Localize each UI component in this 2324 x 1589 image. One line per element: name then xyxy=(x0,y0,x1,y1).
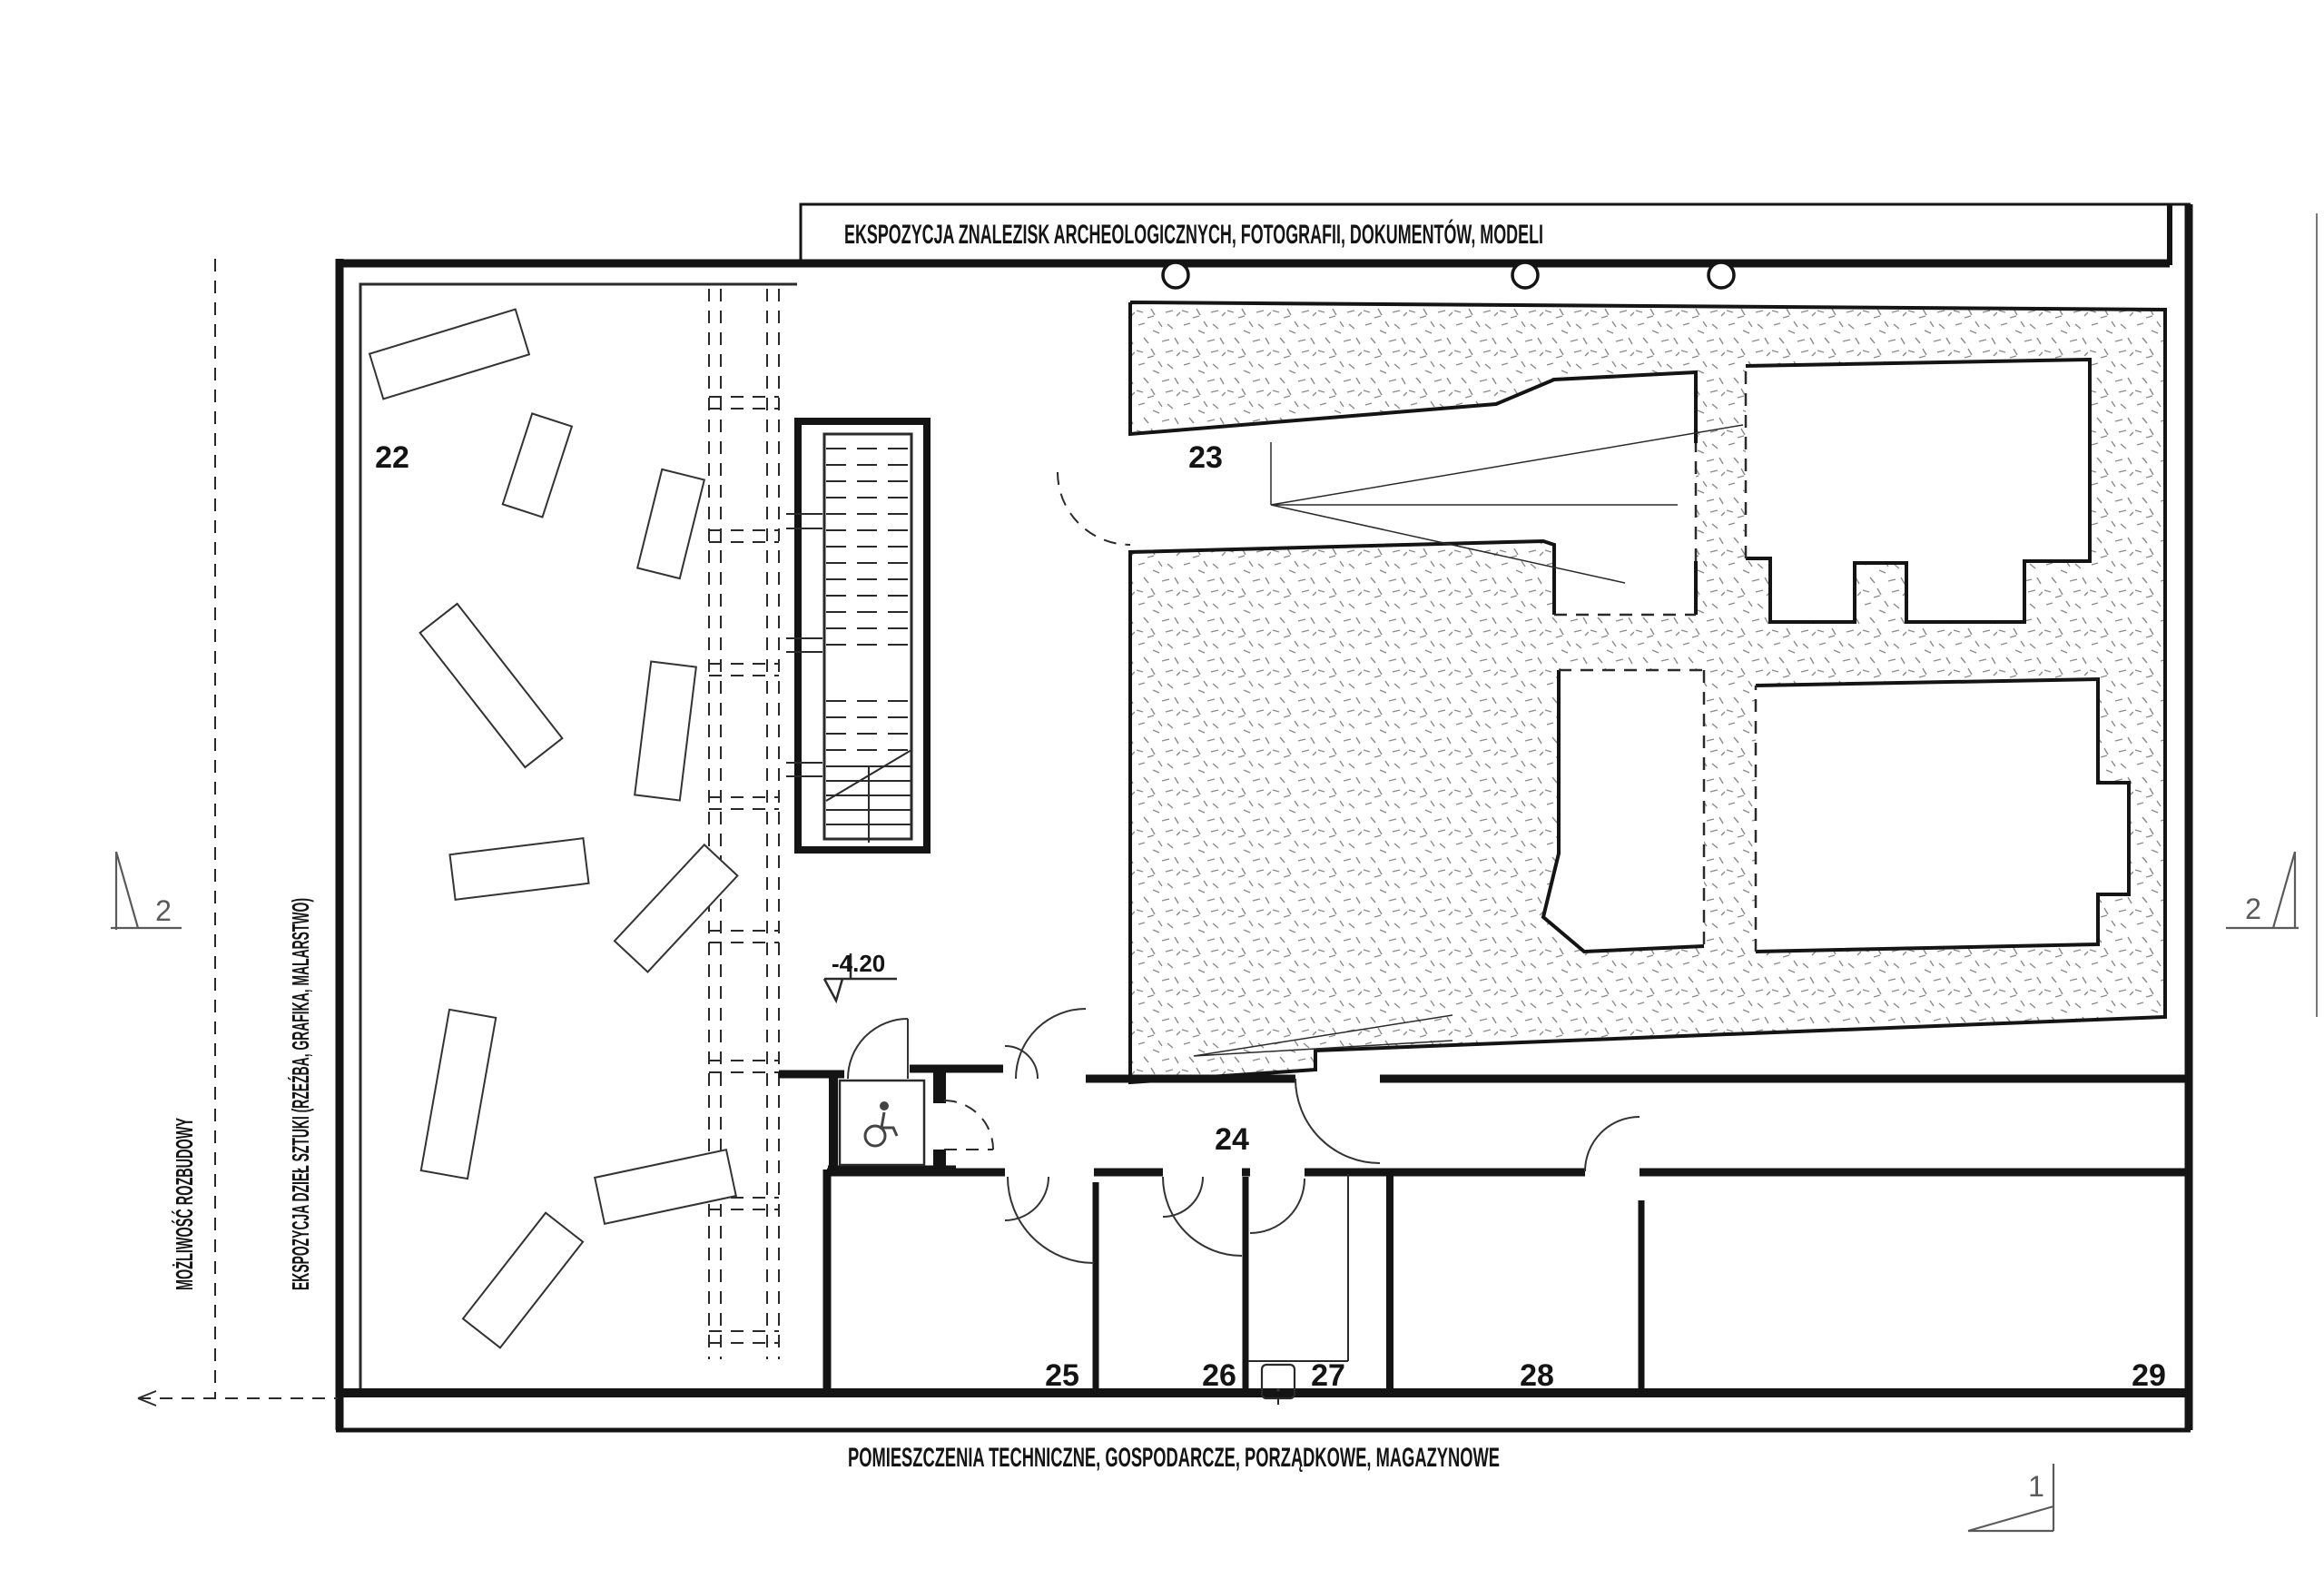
room-22-number: 22 xyxy=(375,440,409,475)
room-24-number: 24 xyxy=(1215,1122,1249,1157)
pedestal xyxy=(635,662,696,801)
pedestal xyxy=(420,604,563,767)
stair-treads-lower xyxy=(826,750,911,843)
ancient-room-d-outline xyxy=(1756,679,2129,952)
column-2 xyxy=(1512,262,1538,288)
stair-enclosure xyxy=(798,421,927,850)
pedestal xyxy=(595,1150,736,1224)
stair-treads-upper xyxy=(826,449,911,750)
bottom-band-label: POMIESZCZENIA TECHNICZNE, GOSPODARCZE, P… xyxy=(848,1443,1500,1473)
room-26-number: 26 xyxy=(1202,1358,1236,1393)
room-29-number: 29 xyxy=(2132,1358,2166,1393)
room-23-number: 23 xyxy=(1188,440,1223,475)
excavation-zone xyxy=(1058,302,2165,1082)
ancient-room-c-outline xyxy=(1543,670,1704,952)
door-room26-arc xyxy=(1163,1177,1242,1256)
column-1 xyxy=(1163,262,1188,288)
pedestal xyxy=(615,844,737,972)
pedestal xyxy=(450,838,589,900)
door-hall-lobby-arc xyxy=(848,1019,908,1079)
section-marker-left-label: 2 xyxy=(155,894,172,927)
section-marker-bottom-label: 1 xyxy=(2028,1470,2044,1503)
room-28-number: 28 xyxy=(1520,1358,1554,1393)
section-marker-right-label: 2 xyxy=(2245,893,2261,925)
section-marker-left: 2 xyxy=(111,852,182,930)
door-corridor-right-arc xyxy=(1295,1079,1380,1163)
door-room29-arc xyxy=(1585,1117,1640,1171)
pedestal xyxy=(421,1010,496,1179)
elevation-label: -4.20 xyxy=(832,950,885,977)
stair-block xyxy=(786,421,927,850)
corridor-and-rooms xyxy=(827,1079,2189,1405)
wheelchair-icon xyxy=(865,1101,897,1146)
left-art-label: EKSPOZYCJA DZIEŁ SZTUKI (RZEŹBA, GRAFIKA… xyxy=(287,898,314,1290)
pedestal xyxy=(503,413,572,517)
column-3 xyxy=(1709,262,1734,288)
top-band-label: EKSPOZYCJA ZNALEZISK ARCHEOLOGICZNYCH, F… xyxy=(844,219,1543,250)
pedestal xyxy=(637,469,704,578)
room-25-number: 25 xyxy=(1045,1358,1079,1393)
lift-door-dashed-arc xyxy=(944,1100,993,1150)
exhibition-pedestals xyxy=(369,310,737,1348)
elevation-marker: -4.20 xyxy=(824,950,897,1001)
door-corridor-double-arc xyxy=(1005,1009,1086,1079)
sink xyxy=(1262,1365,1295,1405)
pedestal xyxy=(369,310,529,400)
door-room25-arc xyxy=(1005,1177,1094,1263)
pedestal xyxy=(463,1213,583,1348)
door-room27-arc xyxy=(1250,1179,1305,1233)
hall22-inner-wall xyxy=(360,284,797,1388)
section-marker-bottom: 1 xyxy=(1968,1464,2053,1531)
section-marker-right: 2 xyxy=(2226,852,2299,928)
floor-plan-canvas: -4.20 xyxy=(0,0,2324,1589)
excavation-fill xyxy=(1130,302,2165,1082)
left-expansion-label: MOŻLIWOŚĆ ROZBUDOWY xyxy=(171,1118,198,1290)
excavation-dashed-door-arc xyxy=(1058,472,1130,545)
stair-section-ticks xyxy=(786,514,822,776)
lift-lobby xyxy=(779,1069,1003,1174)
room-27-number: 27 xyxy=(1311,1358,1345,1393)
